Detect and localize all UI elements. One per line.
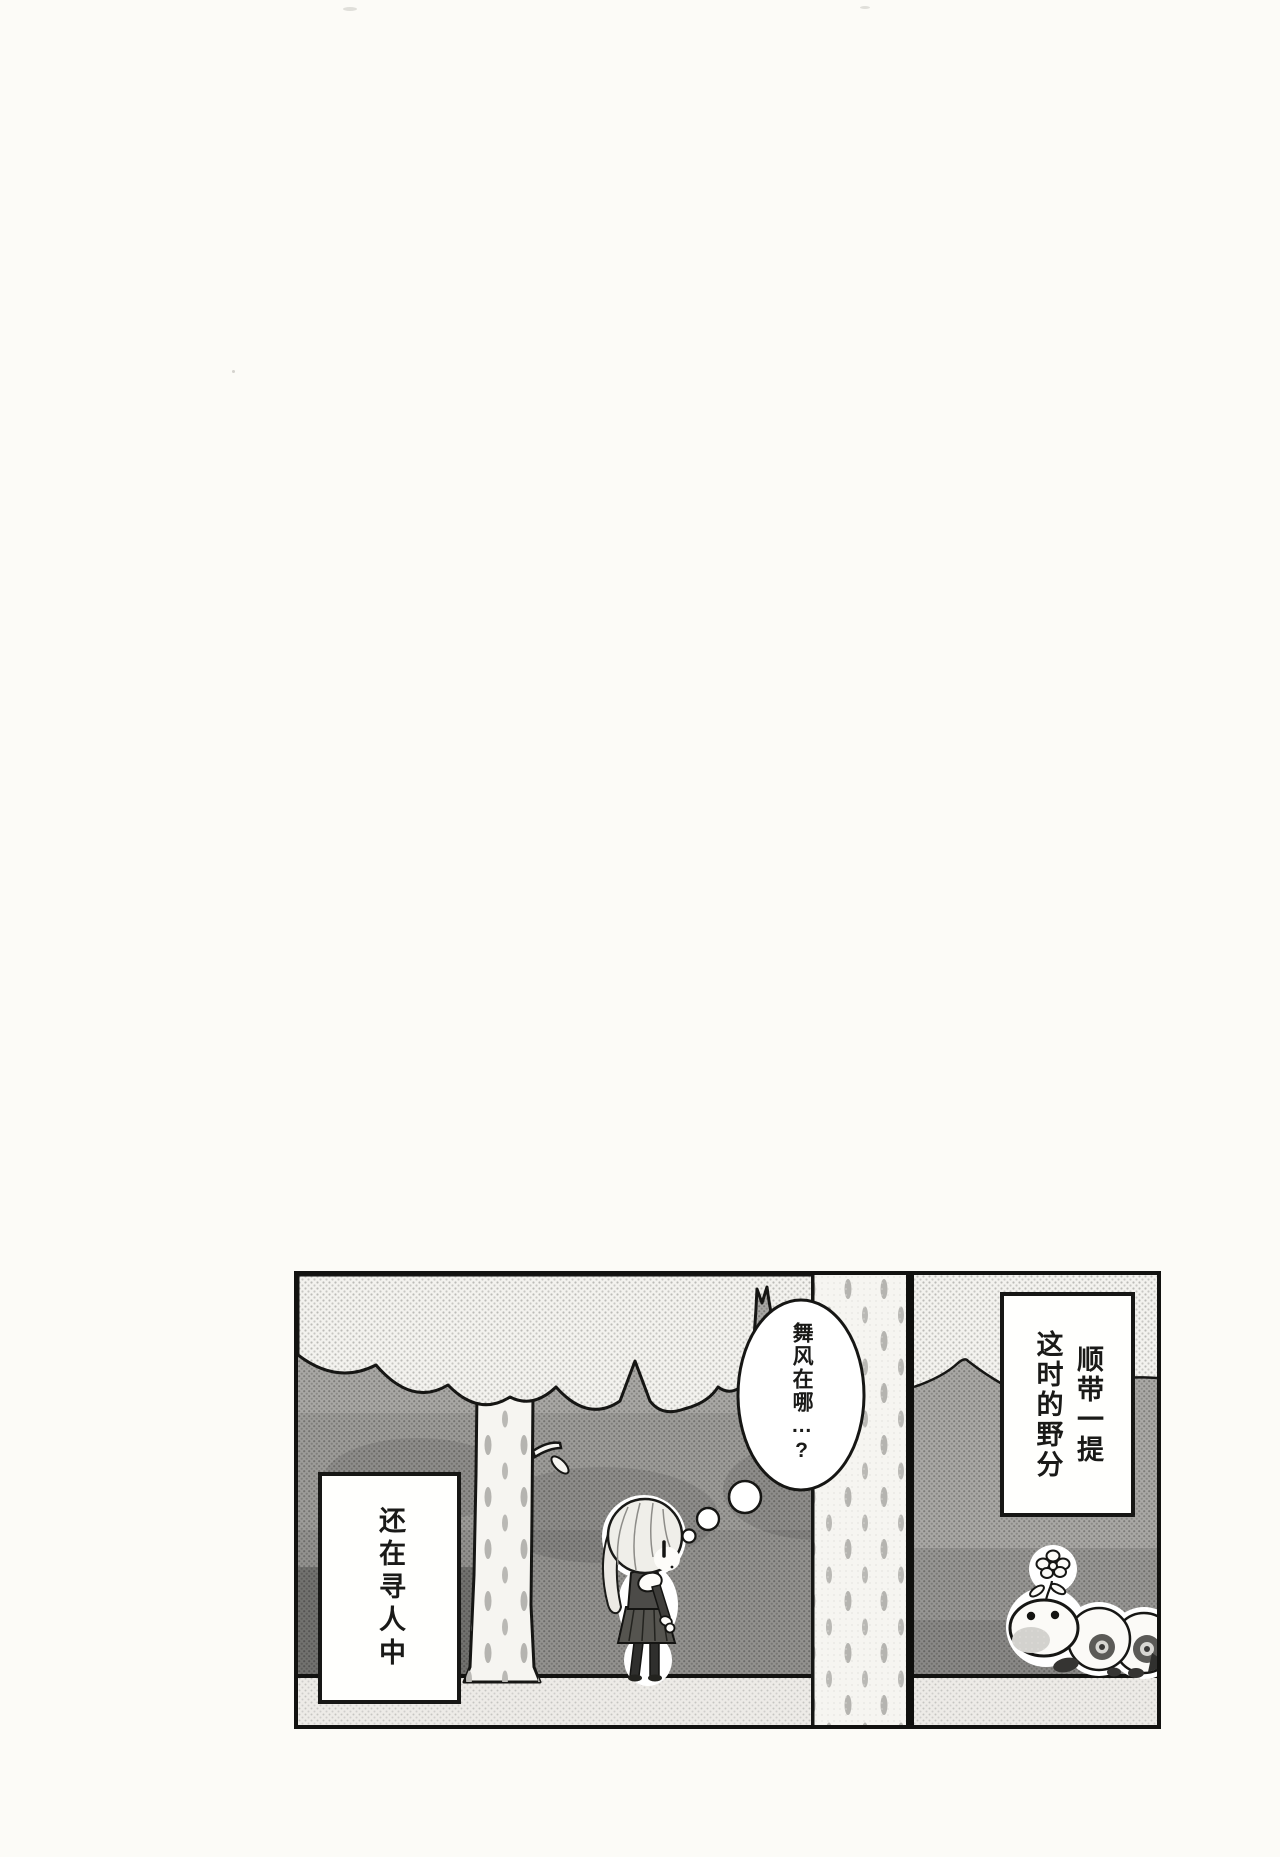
eye (1051, 1611, 1059, 1619)
ground-line (914, 1674, 1157, 1678)
mouth (671, 1566, 674, 1569)
manga-page: { "page": { "paper_color": "#fcfbf7", "i… (0, 0, 1280, 1857)
foot (1128, 1668, 1144, 1678)
scan-speck (860, 6, 870, 9)
scan-speck (232, 370, 235, 373)
thought-bubble-small (683, 1530, 696, 1543)
comic-panel: 舞风在哪…? 顺带一提 这时的野分 还在寻人中 (294, 1271, 1161, 1729)
eye (1027, 1612, 1035, 1620)
shoe (648, 1675, 662, 1682)
caption-box-left: 还在寻人中 (318, 1472, 461, 1704)
caption-right-text: 顺带一提 这时的野分 (1027, 1330, 1108, 1480)
panel-divider (906, 1275, 914, 1725)
foot (1107, 1668, 1121, 1677)
thought-bubble-large (729, 1481, 761, 1513)
caption-box-right: 顺带一提 这时的野分 (1000, 1292, 1135, 1517)
leg (650, 1643, 659, 1676)
thought-bubble-medium (697, 1508, 719, 1530)
scan-speck (343, 7, 357, 11)
thought-bubble-text-wrap: 舞风在哪…? (739, 1311, 863, 1475)
shoe (628, 1675, 642, 1682)
thought-bubble-text: 舞风在哪…? (789, 1322, 813, 1464)
hand (666, 1624, 675, 1633)
ground (914, 1678, 1157, 1725)
caption-left-text: 还在寻人中 (372, 1506, 407, 1671)
face (654, 1547, 680, 1571)
